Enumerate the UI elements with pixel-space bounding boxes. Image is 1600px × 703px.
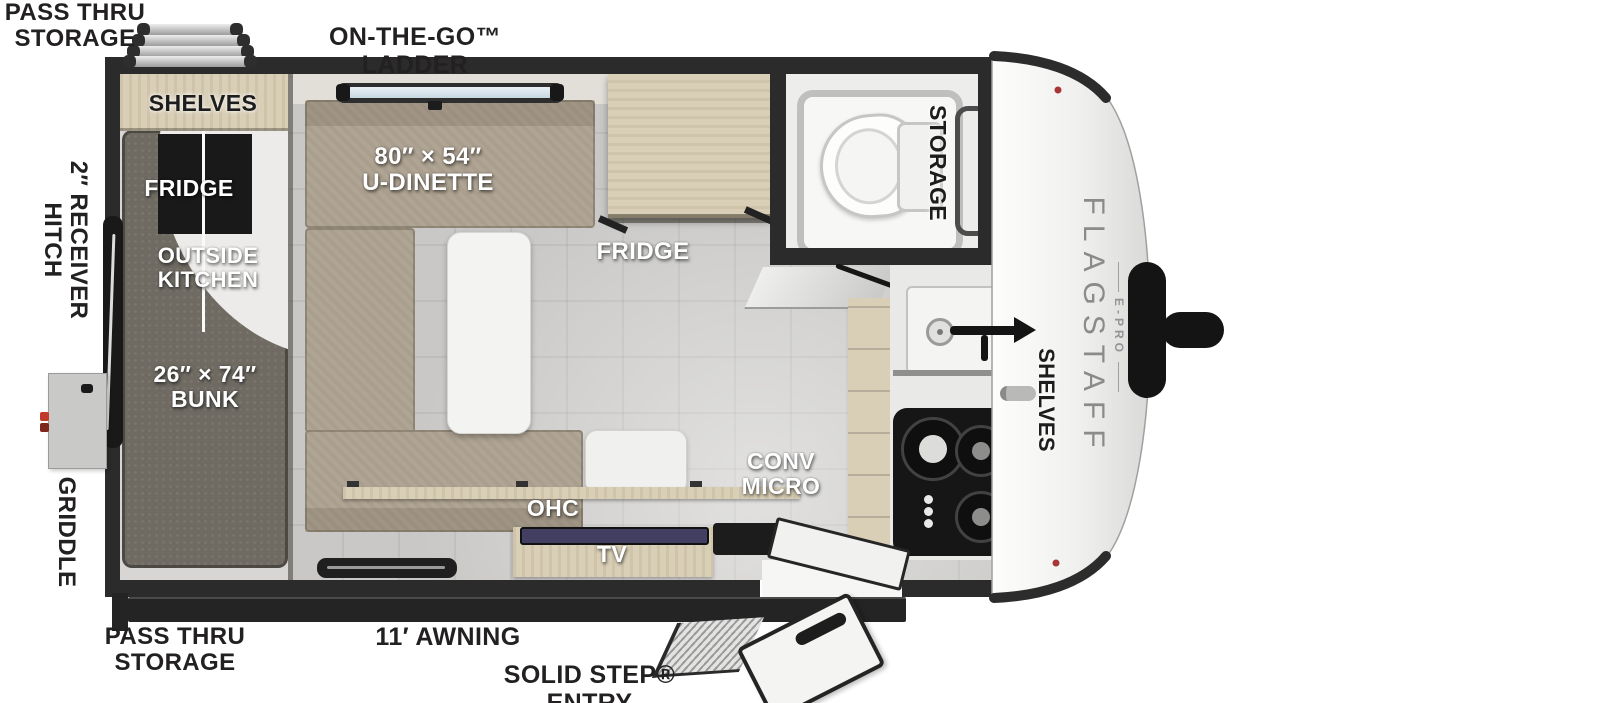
wall-bottom-left: [105, 580, 760, 597]
label-fridge: FRIDGE: [583, 239, 703, 265]
awning-side-window-glass: [327, 566, 445, 569]
step-handle: [793, 611, 848, 648]
rear-section: [120, 74, 288, 580]
label-pass-thru-storage-top: PASS THRU STORAGE: [0, 0, 150, 53]
bath-wall-left: [770, 57, 786, 265]
chair: [585, 430, 687, 494]
tongue-jack-icon: [1128, 262, 1166, 398]
griddle-knob-1: [40, 412, 49, 421]
label-bath-storage: STORAGE: [926, 93, 950, 233]
label-griddle: GRIDDLE: [53, 472, 79, 592]
brand-epro-text: E-PRO: [1112, 298, 1126, 356]
kitchen-cabinet-strip: [848, 298, 890, 560]
shelf-knob: [1000, 386, 1036, 401]
ladder-rung-2: [137, 35, 245, 46]
nose-screw-bottom: [1053, 560, 1060, 567]
label-outside-kitchen: OUTSIDE KITCHEN: [138, 244, 278, 292]
nose-screw-top: [1055, 87, 1062, 94]
griddle-handle: [81, 384, 93, 393]
brand-flagstaff: FLAGSTAFF: [1074, 187, 1110, 467]
rear-wall-window-glass: [106, 234, 116, 430]
faucet-handle-arrow: [1014, 317, 1036, 343]
fridge-cabinet: [608, 74, 770, 218]
label-solid-step-entry: SOLID STEP® ENTRY: [462, 662, 717, 703]
rear-section-divider: [288, 74, 293, 580]
dinette-window-glass: [348, 87, 552, 98]
awning-side-window: [317, 558, 457, 578]
label-on-the-go-ladder: ON-THE-GO™ LADDER: [280, 24, 550, 79]
toilet-seat: [832, 126, 905, 207]
label-u-dinette: 80″ × 54″ U-DINETTE: [338, 144, 518, 197]
window-cap-right: [550, 84, 564, 101]
brand-epro: E-PRO: [1111, 262, 1127, 392]
griddle-knob-2: [40, 423, 49, 432]
ladder-icon: [142, 24, 238, 35]
dinette-bench-left: [305, 228, 415, 433]
griddle-icon: [48, 373, 107, 469]
label-ohc: OHC: [518, 496, 588, 521]
floorplan-canvas: PASS THRU STORAGE ON-THE-GO™ LADDER 2″ R…: [0, 0, 1600, 703]
window-cap-left: [336, 84, 350, 101]
ladder-rung-4: [128, 56, 252, 67]
ohc-clip-3: [690, 481, 702, 487]
ohc-clip-2: [516, 481, 528, 487]
faucet-stem: [981, 335, 988, 361]
label-outside-fridge: FRIDGE: [129, 176, 249, 201]
label-conv-micro: CONV MICRO: [726, 449, 836, 500]
label-receiver-hitch: 2″ RECEIVER HITCH: [37, 150, 91, 330]
label-tv: TV: [582, 542, 642, 567]
label-front-shelves: SHELVES: [1034, 342, 1058, 458]
label-bunk: 26″ × 74″ BUNK: [135, 362, 275, 413]
fridge-cabinet-shadow: [608, 214, 770, 223]
label-awning: 11′ AWNING: [368, 624, 528, 652]
sink-drain-center: [937, 329, 943, 335]
label-shelves-rear: SHELVES: [123, 91, 283, 116]
stove-knob-3: [924, 519, 933, 528]
ohc-clip-1: [347, 481, 359, 487]
dinette-bench-top-back: [305, 100, 595, 126]
awning-rail: [128, 597, 906, 622]
window-latch: [428, 101, 442, 110]
stove-knob-1: [924, 495, 933, 504]
faucet-icon: [950, 326, 1018, 335]
dinette-table: [447, 232, 531, 434]
label-pass-thru-storage-bottom: PASS THRU STORAGE: [95, 624, 255, 677]
dinette-window: [336, 83, 564, 103]
hitch-coupler-icon: [1162, 312, 1224, 348]
outside-kitchen-door-split: [202, 130, 205, 332]
stove-knob-2: [924, 507, 933, 516]
